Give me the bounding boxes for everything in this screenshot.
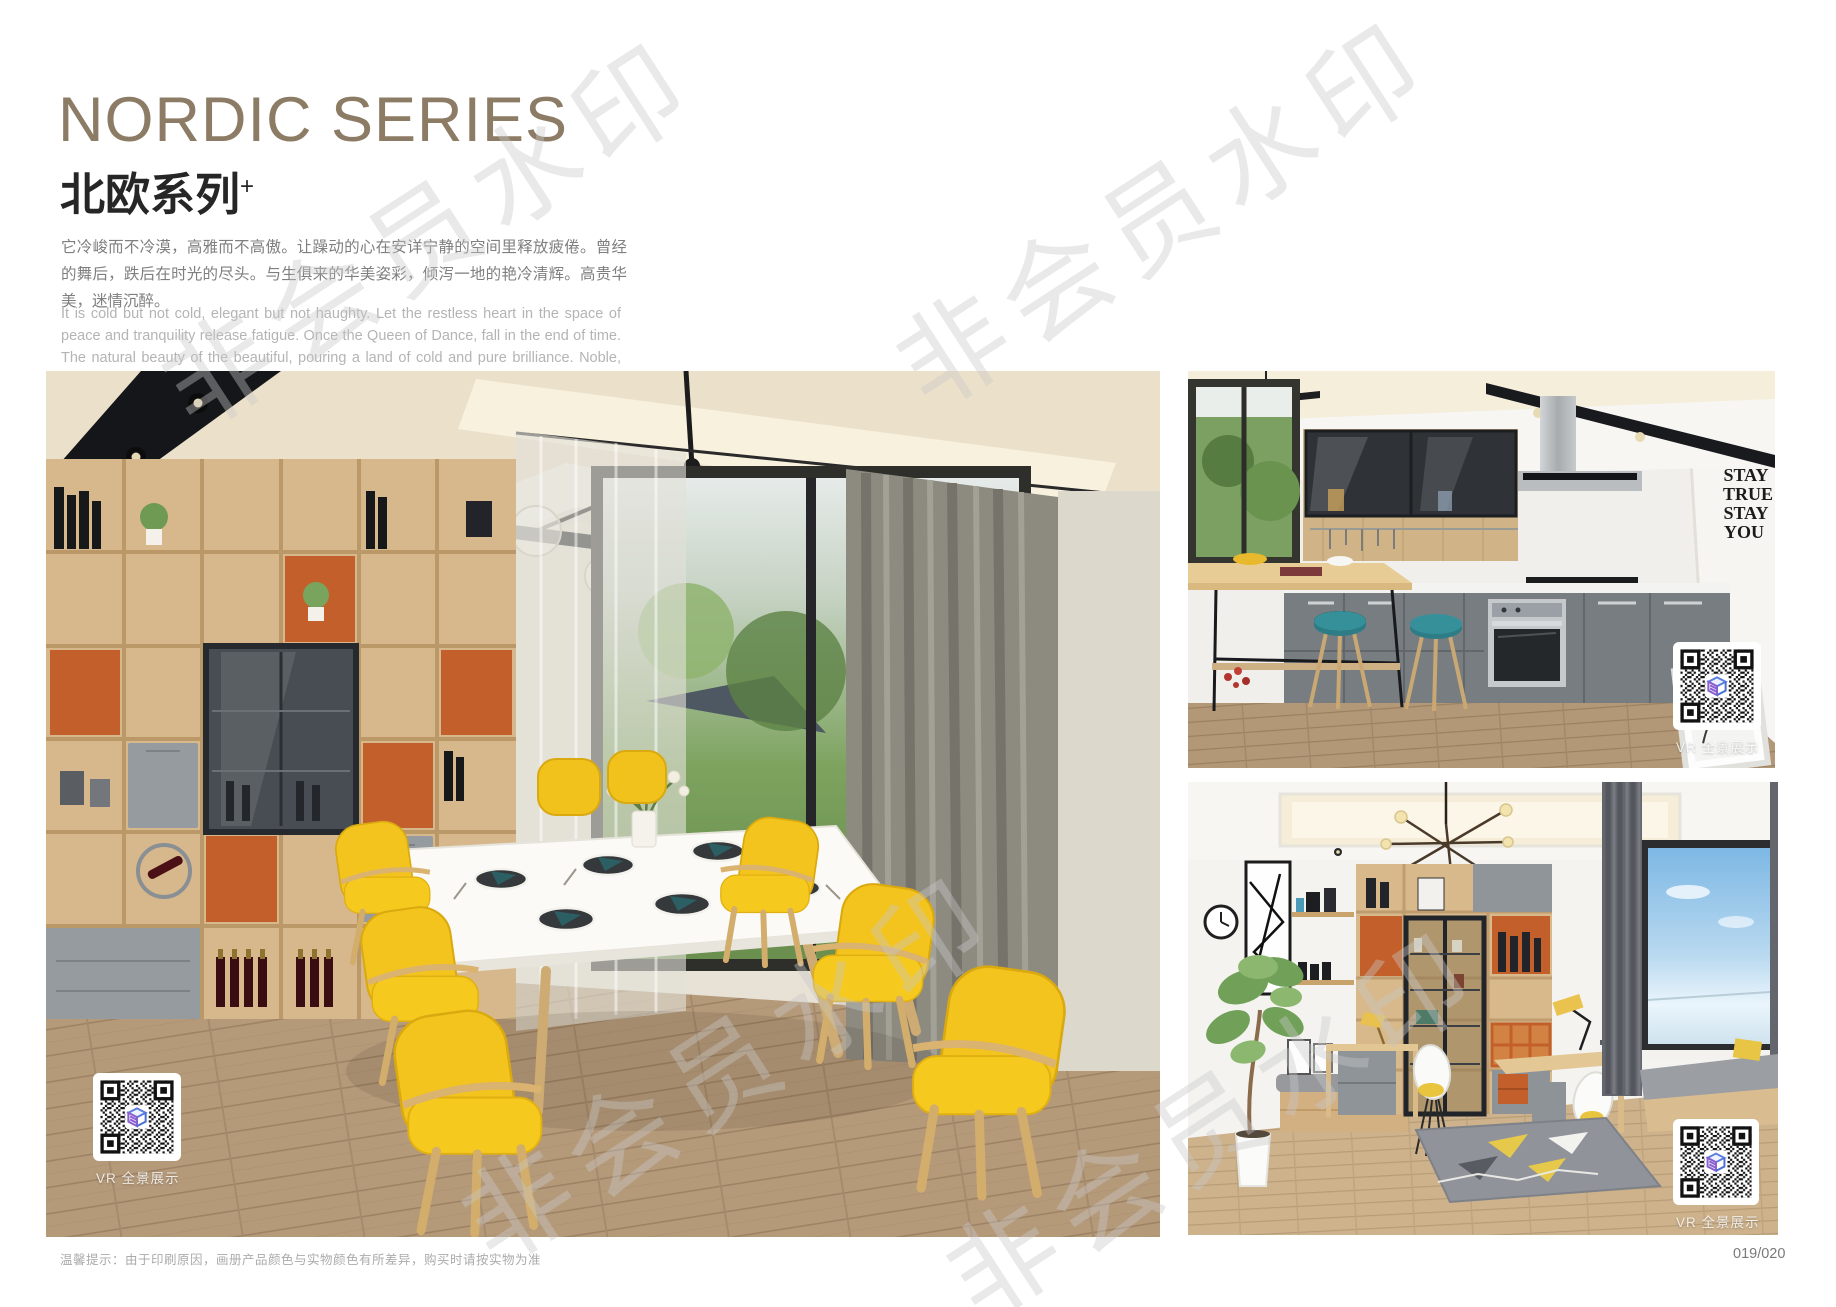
series-title-zh-text: 北欧系列 — [60, 169, 240, 220]
catalog-page: NORDIC SERIES 北欧系列+ 它冷峻而不冷漠，高雅而不高傲。让躁动的心… — [0, 0, 1836, 1307]
vr-qr-code-dining — [96, 1076, 178, 1158]
svg-text:TRUE: TRUE — [1723, 484, 1773, 504]
vr-qr-code-kitchen — [1676, 645, 1758, 727]
svg-text:STAY: STAY — [1723, 503, 1768, 523]
dining-room-photo — [46, 371, 1160, 1237]
upper-cabinets — [1303, 429, 1518, 561]
page-number: 019/020 — [1733, 1246, 1785, 1262]
vr-qr-code-study — [1676, 1122, 1756, 1202]
svg-text:YOU: YOU — [1724, 522, 1764, 542]
vr-badge-dining: VR 全景展示 — [96, 1167, 180, 1187]
kitchen-window — [1188, 379, 1300, 565]
glass-cabinet — [206, 646, 356, 832]
series-title-en: NORDIC SERIES — [58, 84, 568, 156]
study-window — [1640, 840, 1778, 1059]
wall-clock — [1205, 906, 1237, 938]
base-cabinets — [1284, 583, 1730, 703]
svg-text:STAY: STAY — [1723, 465, 1768, 485]
footer-disclaimer: 温馨提示：由于印刷原因，画册产品颜色与实物颜色有所差异，购买时请按实物为准 — [60, 1249, 541, 1268]
series-title-superscript: + — [240, 173, 254, 200]
built-in-oven — [1488, 599, 1566, 687]
vr-badge-kitchen: VR 全景展示 — [1676, 736, 1760, 756]
series-title-zh: 北欧系列+ — [60, 158, 254, 223]
vr-badge-study: VR 全景展示 — [1676, 1211, 1760, 1231]
